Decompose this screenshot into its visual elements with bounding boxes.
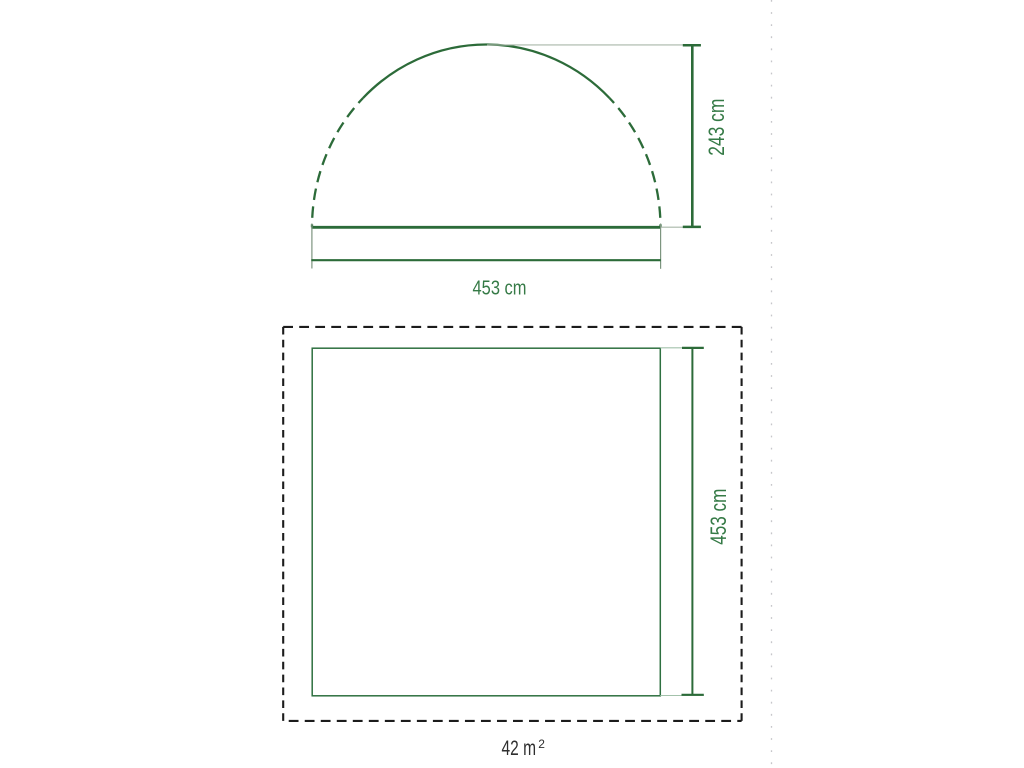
svg-text:2: 2 bbox=[538, 737, 545, 751]
svg-text:453 cm: 453 cm bbox=[706, 489, 731, 545]
svg-text:453 cm: 453 cm bbox=[473, 277, 527, 300]
svg-text:42 m: 42 m bbox=[502, 736, 537, 760]
svg-text:243 cm: 243 cm bbox=[704, 99, 729, 156]
